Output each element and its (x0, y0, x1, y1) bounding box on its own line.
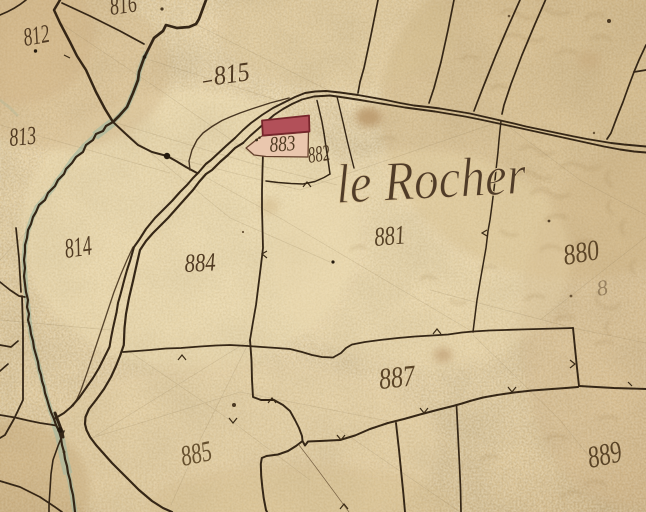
svg-text:814: 814 (63, 230, 94, 264)
svg-text:816: 816 (108, 0, 139, 21)
svg-text:le Rocher: le Rocher (334, 144, 527, 216)
svg-text:882: 882 (306, 140, 331, 168)
svg-text:887: 887 (377, 359, 418, 396)
svg-text:812: 812 (21, 19, 52, 52)
svg-text:884: 884 (184, 247, 216, 278)
svg-text:889: 889 (584, 434, 625, 475)
svg-text:883: 883 (269, 130, 297, 157)
svg-text:885: 885 (178, 435, 215, 473)
svg-text:815: 815 (212, 56, 252, 91)
svg-text:813: 813 (8, 121, 37, 152)
svg-text:881: 881 (373, 219, 406, 252)
svg-text:880: 880 (561, 234, 602, 272)
